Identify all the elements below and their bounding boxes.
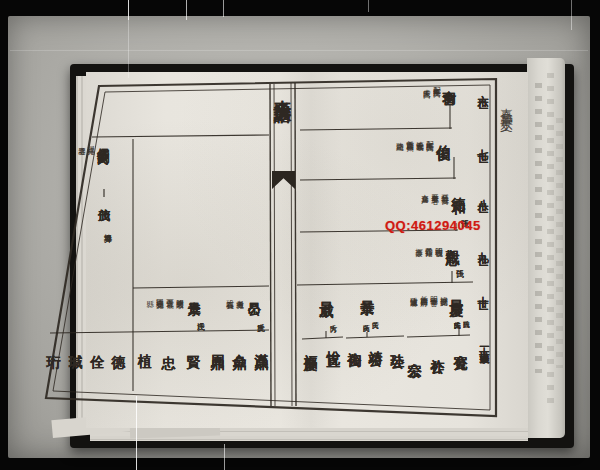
film-scratch <box>368 0 369 12</box>
branch-label: 嘉會戶宗支 <box>500 98 513 113</box>
ancestor-name: 景慶 <box>450 288 464 292</box>
descendant-name: 寬公 <box>454 343 468 347</box>
bleed-through-text <box>556 118 563 368</box>
descendant-name: 裪公 <box>348 340 362 344</box>
bleed-through-text <box>547 73 554 403</box>
ancestor-name: 景威 <box>320 290 334 294</box>
ancestor-note: 連氏元朝宣奉 <box>416 135 424 138</box>
ancestor-name: 景進 <box>188 291 201 293</box>
descendant-name: 福慶 <box>304 342 318 346</box>
ancestor-note: 配室譚氏張氏 <box>426 135 434 138</box>
generation-label: 十一世提頭 <box>479 339 489 349</box>
ancestor-note: 揮僉事 <box>415 242 423 244</box>
film-scratch <box>128 18 129 78</box>
descendant-name: 祚公 <box>431 347 445 351</box>
ancestor-note: 諱搠以父廕 <box>440 290 448 293</box>
descendant-name: 德 <box>112 344 126 346</box>
ancestor-note: 三千敢奇麗名 <box>431 188 439 191</box>
ancestor-name: 伯俊 <box>437 134 451 138</box>
microfilm-frame: 李氏族譜 嘉會戶宗支 六世 七世 八世 九世 十世 十一世提頭 會羽 配室李氏鍾… <box>0 0 600 470</box>
film-scratch-horizontal <box>10 50 588 51</box>
descendant-name: 漢鼎 <box>255 343 269 347</box>
descendant-name: 宗公 <box>408 351 422 355</box>
bleed-through-text <box>535 83 542 373</box>
ancestor-note: 寺署丞 <box>78 141 86 143</box>
ancestor-name: 德和 <box>452 186 466 190</box>
ancestor-name: 景華 <box>361 289 375 293</box>
descendant-name: 瑊 <box>69 344 83 346</box>
generation-label: 十世 <box>477 287 488 293</box>
descendant-name: 金鼎 <box>233 343 247 347</box>
ancestor-note: 諱吉明號槐 <box>435 241 443 244</box>
ancestor-note: 袁氏宋氏 <box>423 83 431 85</box>
ancestor-note: 乙卯官任指 <box>425 241 433 244</box>
ancestor-note: 陞懷遠將軍 <box>410 291 418 294</box>
ancestor-note: 丁丑官任福 <box>166 293 174 296</box>
ancestor-name: 昂公 <box>248 292 261 294</box>
ancestor-note: 配室李氏鍾氏 <box>433 81 441 84</box>
generation-label: 八世 <box>477 190 488 196</box>
qq-watermark: QQ:461294045 <box>385 218 481 233</box>
ancestor-name: 觀志 <box>446 238 460 242</box>
ancestor-name: 會羽 <box>443 79 457 83</box>
descendant-name: 周鼎 <box>211 343 225 347</box>
film-scratch <box>186 0 187 20</box>
descendant-name: 靖公 <box>369 340 383 344</box>
descendant-name: 植 <box>138 343 152 345</box>
ancestor-note: 明宣德十年官 <box>430 290 438 293</box>
ancestor-note: 授光祿 <box>87 140 95 142</box>
generation-label: 九世 <box>477 243 488 249</box>
ancestor-note: 任廣西柳州府 <box>420 290 428 293</box>
descendant-name: 悅直 <box>327 340 341 344</box>
descendant-name: 賢 <box>187 344 201 346</box>
descendant-name: 珩 <box>47 344 61 346</box>
film-scratch <box>223 0 224 17</box>
ancestor-name: 儒公劉氏 <box>97 139 109 143</box>
ancestor-note: 諱選明天順 <box>176 293 184 296</box>
ancestor-note: 縣 <box>146 294 154 295</box>
spouse-name: 劉氏 <box>96 141 110 143</box>
ancestor-note: 建同安縣知 <box>156 293 164 296</box>
descendant-name: 忠 <box>162 344 176 346</box>
descendant-name: 珪公 <box>391 342 405 346</box>
generation-label: 六世 <box>477 86 488 92</box>
generation-label: 七世 <box>477 140 488 146</box>
descendant-name: 佺 <box>91 344 105 346</box>
descendant-name: 茂仙 <box>98 199 110 201</box>
ancestor-note: 立嘉會戶 <box>421 188 429 190</box>
ancestor-note: 公稱月華公壽 <box>441 188 449 191</box>
ancestor-note: 路總司 <box>396 136 404 138</box>
open-page <box>86 72 528 428</box>
ancestor-note: 歿葬義石 <box>226 294 234 296</box>
volume-title: 李氏族譜 <box>274 86 291 94</box>
film-scratch <box>224 444 225 470</box>
right-page-edges <box>527 58 565 438</box>
ancestor-note: 考職吏員 <box>236 294 244 296</box>
film-scratch <box>136 396 137 470</box>
film-scratch <box>571 0 572 30</box>
film-scratch <box>128 0 129 20</box>
ancestor-note: 官任廣西柳州 <box>406 135 414 138</box>
